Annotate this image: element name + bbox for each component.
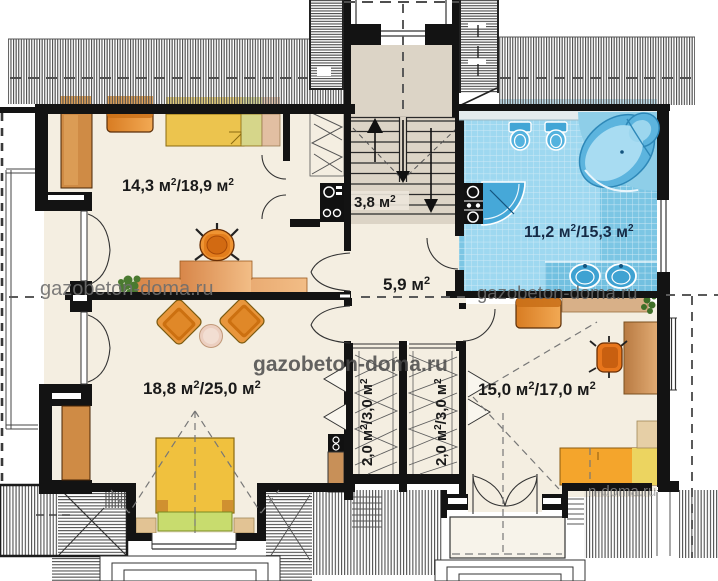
svg-text:gazobeton-doma.ru: gazobeton-doma.ru xyxy=(253,353,448,376)
svg-text:11,2 м2/15,3 м2: 11,2 м2/15,3 м2 xyxy=(524,223,634,241)
svg-text:15,0 м2/17,0 м2: 15,0 м2/17,0 м2 xyxy=(478,380,596,399)
svg-text:n-doma.ru: n-doma.ru xyxy=(588,483,656,500)
svg-text:14,3 м2/18,9 м2: 14,3 м2/18,9 м2 xyxy=(122,177,234,195)
svg-text:5,9 м2: 5,9 м2 xyxy=(383,275,430,294)
svg-text:18,8 м2/25,0 м2: 18,8 м2/25,0 м2 xyxy=(143,379,261,398)
svg-text:2,0 м2/3,0 м2: 2,0 м2/3,0 м2 xyxy=(359,378,376,466)
svg-text:3,8 м2: 3,8 м2 xyxy=(354,194,396,211)
svg-text:gazobeton-doma.ru: gazobeton-doma.ru xyxy=(477,282,637,303)
svg-text:gazobeton-doma.ru: gazobeton-doma.ru xyxy=(40,278,213,300)
svg-text:2,0 м2/3,0 м2: 2,0 м2/3,0 м2 xyxy=(433,378,450,466)
